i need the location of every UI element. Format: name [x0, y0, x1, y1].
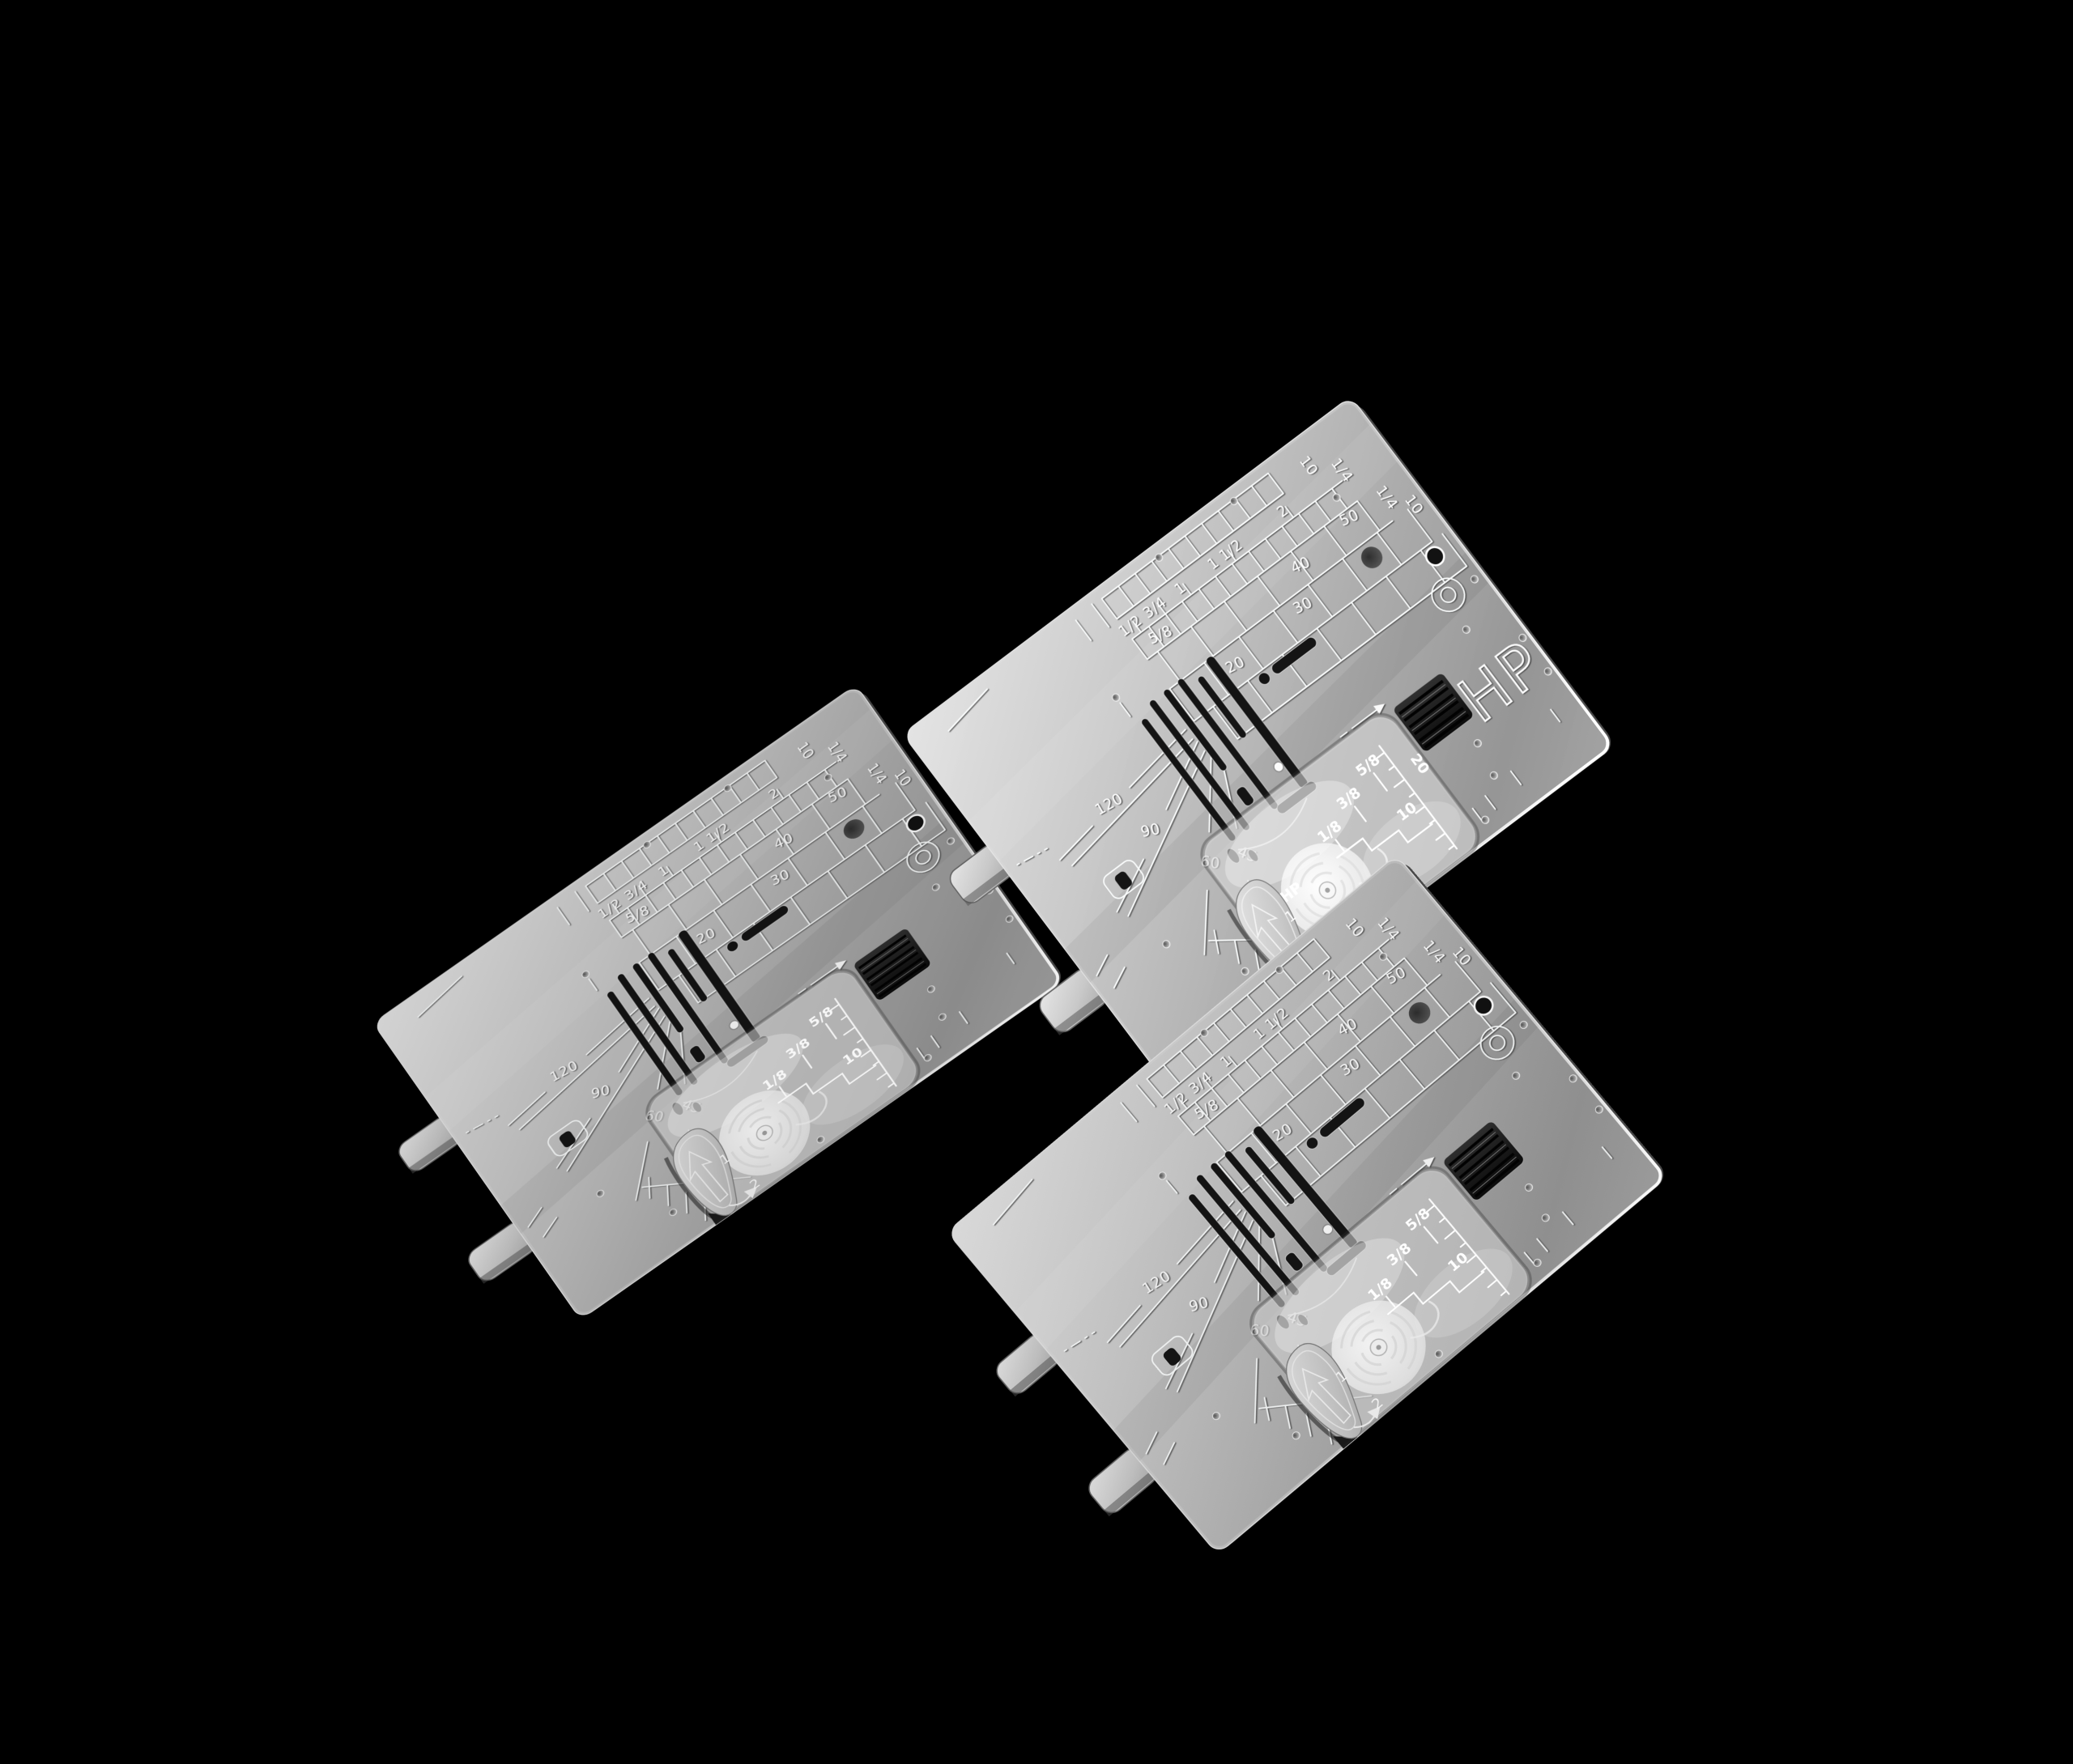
product-photo-scene: 1/2 3/4 1 1 1/2 2 10 1/4 5/8 40 50 1/4 1…	[0, 0, 2073, 1764]
angle-label-90: 90	[1139, 821, 1162, 841]
